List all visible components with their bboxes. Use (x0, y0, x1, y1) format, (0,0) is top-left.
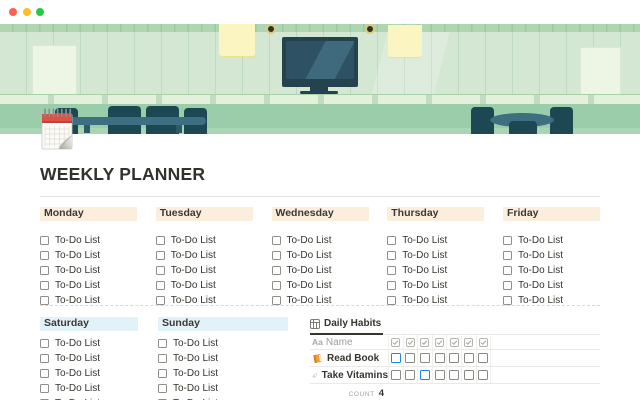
todo-item: To-Do List (40, 351, 138, 366)
todo-item: To-Do List (156, 248, 253, 263)
checkbox-property-icon (464, 338, 473, 347)
checkbox-property-icon (435, 338, 444, 347)
habit-cell (403, 350, 418, 366)
column-friday: Friday To-Do List To-Do List To-Do List … (503, 207, 600, 308)
orange-book-icon (312, 353, 323, 364)
todo-checkbox[interactable] (387, 236, 396, 245)
todo-item: To-Do List (40, 381, 138, 396)
todo-item: To-Do List (156, 233, 253, 248)
todo-label: To-Do List (518, 235, 563, 246)
habit-cell (476, 350, 491, 366)
day-header-sunday: Sunday (158, 317, 288, 331)
todo-item: To-Do List (40, 263, 137, 278)
todo-item: To-Do List (40, 248, 137, 263)
trailing-cell (490, 335, 600, 349)
column-saturday: Saturday To-Do List To-Do List To-Do Lis… (40, 317, 138, 400)
column-thursday: Thursday To-Do List To-Do List To-Do Lis… (387, 207, 484, 308)
todo-label: To-Do List (287, 265, 332, 276)
habit-checkbox[interactable] (420, 370, 430, 380)
day-header-tuesday: Tuesday (156, 207, 253, 221)
checkbox-column-header[interactable] (461, 335, 476, 349)
zoom-window-button[interactable] (36, 8, 44, 16)
page-title: WEEKLY PLANNER (40, 164, 205, 185)
habit-checkbox[interactable] (420, 353, 430, 363)
todo-label: To-Do List (55, 280, 100, 291)
todo-checkbox[interactable] (40, 339, 49, 348)
row-name[interactable]: Take Vitamins (310, 370, 388, 381)
todo-item: To-Do List (387, 248, 484, 263)
todo-checkbox[interactable] (387, 266, 396, 275)
todo-checkbox[interactable] (40, 251, 49, 260)
column-wednesday: Wednesday To-Do List To-Do List To-Do Li… (272, 207, 369, 308)
habit-cell (417, 367, 432, 383)
todo-label: To-Do List (171, 250, 216, 261)
habit-cell (417, 350, 432, 366)
todo-checkbox[interactable] (387, 296, 396, 305)
habit-checkbox[interactable] (435, 370, 445, 380)
todo-checkbox[interactable] (503, 296, 512, 305)
day-header-monday: Monday (40, 207, 137, 221)
row-title: Take Vitamins (322, 370, 388, 381)
todo-checkbox[interactable] (503, 251, 512, 260)
habit-checkbox[interactable] (464, 353, 474, 363)
table-row-read-book[interactable]: Read Book (310, 350, 600, 367)
habit-checkbox[interactable] (464, 370, 474, 380)
todo-label: To-Do List (402, 295, 447, 306)
todo-item: To-Do List (158, 336, 288, 351)
todo-checkbox[interactable] (40, 281, 49, 290)
table-leg (84, 125, 90, 133)
todo-label: To-Do List (171, 280, 216, 291)
todo-label: To-Do List (171, 235, 216, 246)
chair-icon (509, 121, 537, 134)
todo-label: To-Do List (287, 235, 332, 246)
todo-item: To-Do List (40, 233, 137, 248)
habit-checkbox[interactable] (478, 353, 488, 363)
todo-item: To-Do List (272, 248, 369, 263)
todo-checkbox[interactable] (272, 236, 281, 245)
wall-poster-yellow-1 (219, 24, 255, 57)
checkbox-column-header[interactable] (446, 335, 461, 349)
todo-item: To-Do List (387, 263, 484, 278)
todo-checkbox[interactable] (158, 384, 167, 393)
todo-checkbox[interactable] (40, 266, 49, 275)
row-name[interactable]: Read Book (310, 353, 388, 364)
name-column-label: Name (326, 337, 353, 348)
habit-cell (388, 367, 403, 383)
todo-label: To-Do List (55, 368, 100, 379)
todo-checkbox[interactable] (503, 236, 512, 245)
habit-cell (446, 350, 461, 366)
habit-checkbox[interactable] (405, 370, 415, 380)
tab-label: Daily Habits (324, 318, 381, 329)
todo-label: To-Do List (402, 280, 447, 291)
todo-checkbox[interactable] (503, 281, 512, 290)
todo-item: To-Do List (158, 366, 288, 381)
column-sunday: Sunday To-Do List To-Do List To-Do List … (158, 317, 288, 400)
checkbox-column-header[interactable] (388, 335, 403, 349)
text-property-icon: Aa (312, 337, 323, 347)
todo-item: To-Do List (158, 396, 288, 400)
todo-item: To-Do List (40, 293, 137, 308)
checkbox-column-header[interactable] (476, 335, 491, 349)
count-label: COUNT (349, 391, 375, 398)
todo-checkbox[interactable] (387, 251, 396, 260)
todo-label: To-Do List (287, 295, 332, 306)
todo-item: To-Do List (503, 278, 600, 293)
todo-checkbox[interactable] (40, 354, 49, 363)
todo-item: To-Do List (40, 278, 137, 293)
table-footer-count[interactable]: COUNT 4 (310, 384, 388, 399)
todo-item: To-Do List (503, 233, 600, 248)
checkbox-property-icon (406, 338, 415, 347)
todo-label: To-Do List (518, 250, 563, 261)
todo-label: To-Do List (518, 265, 563, 276)
todo-checkbox[interactable] (156, 251, 165, 260)
trailing-cell (490, 367, 600, 383)
table-view-icon (310, 319, 320, 329)
table-row-take-vitamins[interactable]: Take Vitamins (310, 367, 600, 384)
todo-checkbox[interactable] (156, 281, 165, 290)
todo-item: To-Do List (272, 263, 369, 278)
todo-checkbox[interactable] (158, 354, 167, 363)
column-monday: Monday To-Do List To-Do List To-Do List … (40, 207, 137, 308)
column-tuesday: Tuesday To-Do List To-Do List To-Do List… (156, 207, 253, 308)
todo-checkbox[interactable] (272, 281, 281, 290)
todo-item: To-Do List (387, 233, 484, 248)
checkbox-column-header[interactable] (403, 335, 418, 349)
checkbox-property-icon (450, 338, 459, 347)
name-column-header[interactable]: Aa Name (310, 337, 388, 348)
tv-screen (282, 37, 358, 87)
todo-item: To-Do List (40, 366, 138, 381)
todo-checkbox[interactable] (40, 384, 49, 393)
checkbox-column-header[interactable] (417, 335, 432, 349)
divider (40, 196, 600, 197)
todo-label: To-Do List (173, 368, 218, 379)
todo-checkbox[interactable] (272, 296, 281, 305)
day-header-wednesday: Wednesday (272, 207, 369, 221)
todo-label: To-Do List (402, 265, 447, 276)
todo-checkbox[interactable] (272, 251, 281, 260)
habit-cell (403, 367, 418, 383)
todo-checkbox[interactable] (40, 369, 49, 378)
habit-checkbox[interactable] (478, 370, 488, 380)
table-leg (176, 125, 182, 133)
habit-cell (432, 350, 447, 366)
todo-checkbox[interactable] (158, 339, 167, 348)
todo-item: To-Do List (156, 293, 253, 308)
notion-weekly-planner-window: WEEKLY PLANNER Monday To-Do List To-Do L… (0, 0, 640, 400)
todo-item: To-Do List (387, 278, 484, 293)
todo-label: To-Do List (287, 250, 332, 261)
todo-label: To-Do List (402, 235, 447, 246)
wall-clock-icon (268, 26, 274, 32)
todo-label: To-Do List (518, 295, 563, 306)
todo-item: To-Do List (272, 293, 369, 308)
spiral-calendar-icon (38, 106, 76, 151)
wall-wainscot (0, 94, 640, 104)
todo-checkbox[interactable] (158, 369, 167, 378)
todo-label: To-Do List (173, 383, 218, 394)
habits-tabbar: Daily Habits (310, 316, 600, 335)
habit-cell (461, 367, 476, 383)
day-header-saturday: Saturday (40, 317, 138, 331)
todo-label: To-Do List (287, 280, 332, 291)
habit-checkbox[interactable] (449, 353, 459, 363)
todo-checkbox[interactable] (156, 266, 165, 275)
tab-daily-habits[interactable]: Daily Habits (310, 316, 383, 335)
todo-item: To-Do List (272, 233, 369, 248)
todo-label: To-Do List (55, 250, 100, 261)
todo-label: To-Do List (55, 295, 100, 306)
habit-cell (388, 350, 403, 366)
day-header-thursday: Thursday (387, 207, 484, 221)
habit-cell (476, 367, 491, 383)
todo-item: To-Do List (40, 336, 138, 351)
todo-label: To-Do List (173, 353, 218, 364)
todo-item: To-Do List (156, 278, 253, 293)
habit-checkbox[interactable] (449, 370, 459, 380)
day-header-friday: Friday (503, 207, 600, 221)
todo-checkbox[interactable] (156, 296, 165, 305)
cover-image-meeting-room[interactable] (0, 24, 640, 134)
habit-checkbox[interactable] (391, 370, 401, 380)
todo-checkbox[interactable] (272, 266, 281, 275)
todo-item: To-Do List (503, 263, 600, 278)
todo-label: To-Do List (55, 353, 100, 364)
todo-item: To-Do List (158, 351, 288, 366)
todo-item: To-Do List (387, 293, 484, 308)
habit-cell (432, 367, 447, 383)
checkbox-property-icon (391, 338, 400, 347)
browser-titlebar (0, 0, 640, 24)
todo-item: To-Do List (272, 278, 369, 293)
todo-label: To-Do List (171, 295, 216, 306)
todo-label: To-Do List (55, 235, 100, 246)
habit-cell (446, 367, 461, 383)
todo-checkbox[interactable] (503, 266, 512, 275)
habit-checkbox[interactable] (391, 353, 401, 363)
todo-item: To-Do List (158, 381, 288, 396)
habit-cell (461, 350, 476, 366)
close-window-button[interactable] (9, 8, 17, 16)
todo-item: To-Do List (503, 248, 600, 263)
checkbox-column-header[interactable] (432, 335, 447, 349)
habit-checkbox[interactable] (435, 353, 445, 363)
todo-label: To-Do List (171, 265, 216, 276)
todo-label: To-Do List (55, 265, 100, 276)
habits-header-row: Aa Name (310, 335, 600, 350)
minimize-window-button[interactable] (23, 8, 31, 16)
weekday-columns: Monday To-Do List To-Do List To-Do List … (40, 207, 600, 308)
row-title: Read Book (327, 353, 379, 364)
todo-item: To-Do List (503, 293, 600, 308)
todo-label: To-Do List (55, 383, 100, 394)
wall-clock-icon-2 (367, 26, 373, 32)
page-icon-spiral-calendar[interactable] (38, 106, 76, 151)
conference-table (58, 117, 206, 125)
daily-habits-table: Daily Habits Aa Name (310, 316, 600, 399)
floor-edge (0, 128, 640, 134)
todo-label: To-Do List (55, 338, 100, 349)
todo-checkbox[interactable] (40, 296, 49, 305)
todo-checkbox[interactable] (40, 236, 49, 245)
checkbox-property-icon (479, 338, 488, 347)
checkbox-property-icon (420, 338, 429, 347)
todo-checkbox[interactable] (387, 281, 396, 290)
todo-label: To-Do List (402, 250, 447, 261)
pill-icon (312, 370, 318, 381)
todo-checkbox[interactable] (156, 236, 165, 245)
trailing-cell (490, 350, 600, 366)
ceiling-rail (0, 24, 640, 32)
todo-item: To-Do List (40, 396, 138, 400)
count-value: 4 (379, 388, 384, 399)
todo-label: To-Do List (173, 338, 218, 349)
habit-checkbox[interactable] (405, 353, 415, 363)
wall-poster-yellow-2 (388, 25, 422, 58)
todo-label: To-Do List (518, 280, 563, 291)
todo-item: To-Do List (156, 263, 253, 278)
